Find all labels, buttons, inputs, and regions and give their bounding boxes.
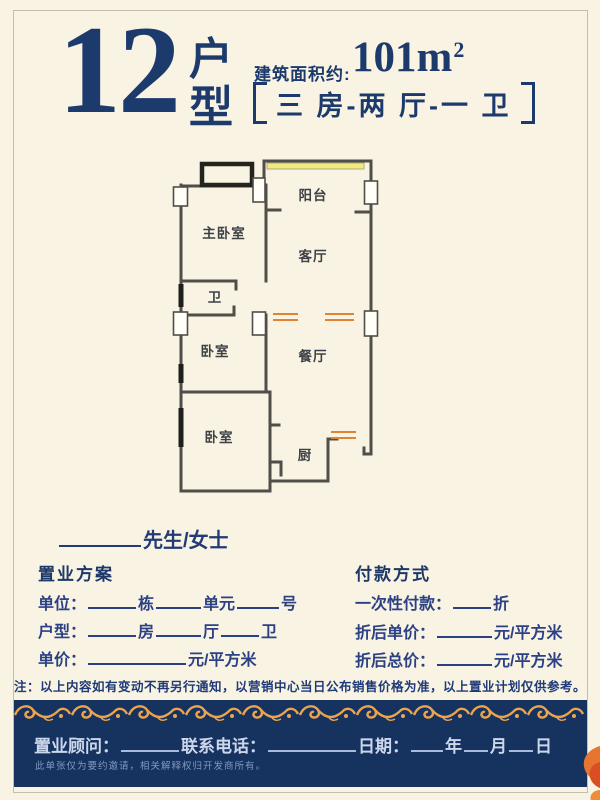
year-label: 年 (445, 732, 462, 757)
unit-label: 单位： (38, 590, 86, 614)
price-blank (88, 661, 186, 665)
discount-suffix: 折 (493, 590, 509, 614)
phone-blank (268, 748, 356, 752)
halls-suffix: 厅 (203, 618, 219, 642)
plan-section-title: 置业方案 (38, 560, 114, 585)
discounted-total-price-blank (437, 662, 492, 666)
layout-label: 户型： (38, 618, 86, 642)
unit-type-char-xing: 型 (189, 84, 233, 132)
consultant-blank (121, 748, 179, 752)
phone-label: 联系电话： (181, 732, 266, 757)
date-label: 日期： (358, 732, 409, 757)
number-suffix: 号 (281, 590, 297, 614)
halls-blank (156, 633, 201, 637)
day-label: 日 (535, 732, 552, 757)
flyer-page: 12 户 型 建筑面积约: 101m2 三 房-两 厅-一 卫 (0, 0, 600, 800)
discounted-unit-price-blank (437, 634, 492, 638)
door-opening-marks (273, 314, 356, 438)
discounted-total-price-label: 折后总价： (355, 647, 435, 671)
building-suffix: 栋 (138, 590, 154, 614)
payment-section-title: 付款方式 (355, 560, 431, 585)
window-blocks (174, 178, 378, 336)
name-blank (59, 543, 141, 547)
plan-row-price: 单价： 元/平方米 (38, 646, 256, 670)
unit-blank (156, 605, 201, 609)
room-label-dining-room: 餐厅 (298, 348, 328, 364)
discounted-unit-price-label: 折后单价： (355, 619, 435, 643)
greeting-line: 先生/女士 (57, 524, 229, 553)
unit-type-label: 户 型 (189, 36, 233, 132)
payment-row-unitprice: 折后单价： 元/平方米 (355, 619, 562, 643)
footer-disclaimer: 此单张仅为要约邀请，相关解释权归开发商所有。 (35, 758, 266, 772)
rooms-blank (88, 633, 136, 637)
unit-type-char-hu: 户 (189, 36, 233, 84)
price-label: 单价： (38, 646, 86, 670)
discounted-unit-price-suffix: 元/平方米 (494, 619, 562, 643)
payment-row-onetime: 一次性付款： 折 (355, 590, 509, 614)
consultant-label: 置业顾问： (34, 732, 119, 757)
balcony-window-strip (267, 163, 364, 169)
bay-window (202, 164, 252, 185)
layout-spec: 三 房-两 厅-一 卫 (253, 82, 535, 124)
unit-number: 12 (58, 8, 178, 134)
bracket-right (521, 82, 535, 124)
footer-contact-row: 置业顾问： 联系电话： 日期： 年 月 日 (34, 732, 552, 757)
unit-suffix: 单元 (203, 590, 235, 614)
note-line: 注：以上内容如有变动不再另行通知，以营销中心当日公布销售价格为准，以上置业计划仅… (0, 676, 600, 695)
area-value: 101m2 (352, 36, 464, 79)
discount-blank (453, 605, 491, 609)
wave-scroll-ornament (14, 702, 587, 724)
orange-stamp-icon (577, 744, 600, 800)
payment-row-totalprice: 折后总价： 元/平方米 (355, 647, 562, 671)
area-number: 101m (352, 34, 452, 81)
year-blank (411, 748, 443, 752)
number-blank (237, 605, 279, 609)
discounted-total-price-suffix: 元/平方米 (494, 647, 562, 671)
month-blank (464, 748, 488, 752)
room-label-balcony: 阳台 (299, 187, 328, 203)
onetime-label: 一次性付款： (355, 590, 451, 614)
month-label: 月 (490, 732, 507, 757)
plan-row-unit: 单位： 栋 单元 号 (38, 590, 297, 614)
building-blank (88, 605, 136, 609)
room-label-kitchen: 厨 (298, 448, 313, 463)
room-label-bathroom: 卫 (208, 290, 223, 305)
room-label-bedroom3: 卧室 (205, 429, 234, 445)
greeting-label: 先生/女士 (143, 524, 229, 553)
plan-row-layout: 户型： 房 厅 卫 (38, 618, 277, 642)
room-label-bedroom2: 卧室 (201, 343, 230, 359)
day-blank (509, 748, 533, 752)
room-label-master-bedroom: 主卧室 (202, 225, 246, 241)
floorplan-diagram: 阳台 主卧室 客厅 卫 卧室 餐厅 卧室 厨 (158, 152, 388, 527)
baths-suffix: 卫 (261, 618, 277, 642)
rooms-suffix: 房 (138, 618, 154, 642)
area-superscript: 2 (453, 37, 464, 62)
room-label-living-room: 客厅 (298, 248, 328, 264)
layout-spec-text: 三 房-两 厅-一 卫 (267, 84, 521, 123)
baths-blank (221, 633, 259, 637)
bracket-left (253, 82, 267, 124)
price-suffix: 元/平方米 (188, 646, 256, 670)
footer-band: 置业顾问： 联系电话： 日期： 年 月 日 此单张仅为要约邀请，相关解释权归开发… (14, 700, 587, 787)
